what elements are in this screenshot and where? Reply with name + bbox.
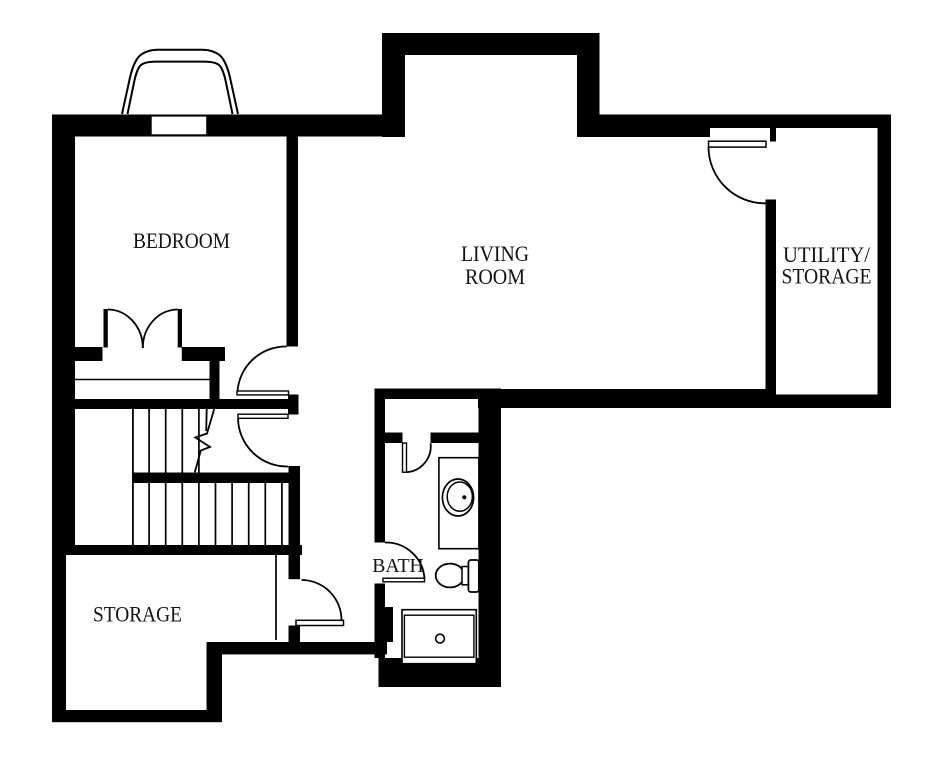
svg-text:STORAGE: STORAGE	[93, 602, 182, 627]
svg-text:BEDROOM: BEDROOM	[133, 228, 230, 253]
svg-text:ROOM: ROOM	[465, 264, 525, 289]
svg-text:BATH: BATH	[372, 555, 424, 577]
svg-text:LIVING: LIVING	[461, 241, 529, 266]
svg-text:STORAGE: STORAGE	[782, 264, 872, 289]
